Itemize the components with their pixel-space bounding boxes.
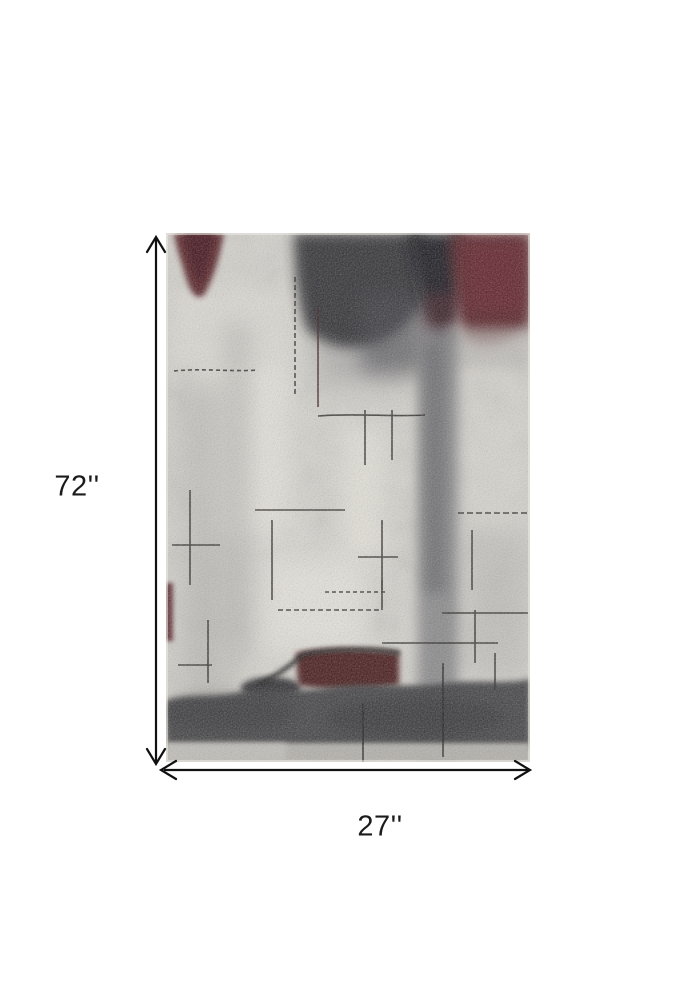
rug-image [166,233,530,762]
width-dimension-label: 27'' [357,811,402,844]
height-dimension-label: 72'' [54,471,99,504]
rug-artwork [166,233,530,762]
height-dimension-arrow [147,237,165,764]
arrowhead-right-icon [515,761,530,779]
arrowhead-left-icon [161,761,176,779]
arrowhead-up-icon [147,237,165,252]
width-dimension-arrow [161,761,530,779]
product-dimension-figure: 72'' 27'' [0,0,697,1000]
arrowhead-down-icon [147,749,165,764]
